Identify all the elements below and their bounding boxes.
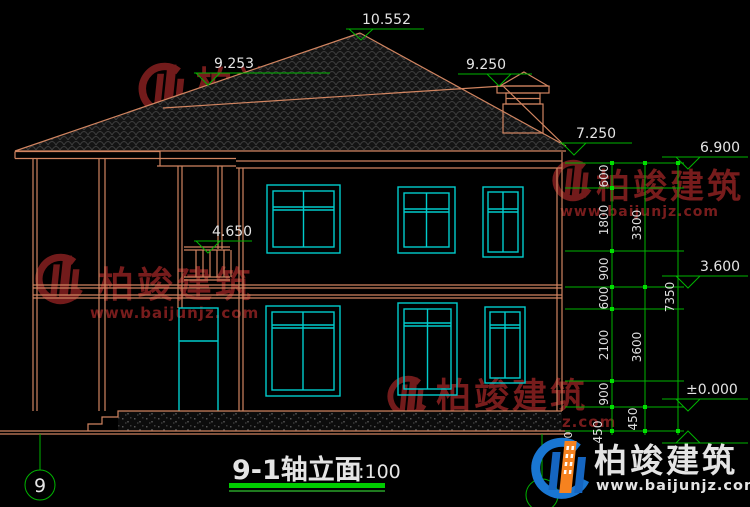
eave-fascia xyxy=(15,152,562,169)
cad-elevation-screenshot: 柏竣建筑 www.baijunjz.com 柏竣建筑 www.baijunjz.… xyxy=(0,0,750,507)
window-1f-right xyxy=(485,307,525,383)
window-2f-middle xyxy=(398,187,455,253)
dim-label: 3600 xyxy=(630,332,644,363)
elev-marker-wall-top: 6.900 xyxy=(662,140,748,169)
brand-icon xyxy=(39,256,81,301)
brand-logo: 柏竣建筑 www.baijunjz.com xyxy=(536,441,750,494)
window-2f-right xyxy=(483,187,523,257)
window-1f-left xyxy=(266,306,340,396)
roof-tiles xyxy=(15,33,566,151)
dim-label: 3300 xyxy=(630,210,644,241)
dim-label: 450 xyxy=(626,408,640,431)
logo-url: www.baijunjz.com xyxy=(596,478,750,494)
brand-icon xyxy=(555,161,589,198)
dim-label: 7350 xyxy=(663,282,677,313)
title-block: 9-1轴立面 1:100 xyxy=(229,454,401,492)
dim-label: 900 xyxy=(597,258,611,281)
elevation-value: 7.250 xyxy=(576,126,616,142)
elevation-value: 3.600 xyxy=(700,259,740,275)
roof xyxy=(15,33,566,151)
dim-label: 2100 xyxy=(597,330,611,361)
axis-bubble-left: 9 xyxy=(25,434,55,500)
elev-marker-eave: 7.250 xyxy=(560,126,632,155)
watermark-left-middle: 柏竣建筑 www.baijunjz.com xyxy=(39,256,259,322)
window-2f-left xyxy=(267,185,340,253)
elevation-drawing-canvas: 柏竣建筑 www.baijunjz.com 柏竣建筑 www.baijunjz.… xyxy=(0,0,750,507)
elevation-value: 6.900 xyxy=(700,140,740,156)
dim-label: 600 xyxy=(597,287,611,310)
elevation-value: 10.552 xyxy=(362,12,411,28)
elevation-value: 4.650 xyxy=(212,224,252,240)
dim-label: 1800 xyxy=(597,205,611,236)
brand-icon xyxy=(390,377,424,414)
title-underline-thin xyxy=(229,490,385,492)
plinth-hatch xyxy=(118,411,562,431)
drawing-scale: 1:100 xyxy=(346,461,401,483)
dim-label: 600 xyxy=(597,165,611,188)
ground-line xyxy=(0,431,570,434)
drawing-title: 9-1轴立面 xyxy=(232,454,362,486)
logo-name: 柏竣建筑 xyxy=(594,441,738,480)
watermark-right-middle: 柏竣建筑 www.baijunjz.com xyxy=(555,161,744,220)
entry-door xyxy=(179,308,218,414)
elev-marker-right-roof: 9.250 xyxy=(458,57,532,86)
axis-number: 9 xyxy=(34,475,46,497)
elevation-value: 9.250 xyxy=(466,57,506,73)
elevation-value: 9.253 xyxy=(214,56,254,72)
title-underline xyxy=(229,483,385,488)
dim-label: 900 xyxy=(597,383,611,406)
watermark-url: www.baijunjz.com xyxy=(90,304,259,322)
watermark-name: 柏竣建筑 xyxy=(596,167,744,207)
elevation-value: ±0.000 xyxy=(686,382,738,398)
